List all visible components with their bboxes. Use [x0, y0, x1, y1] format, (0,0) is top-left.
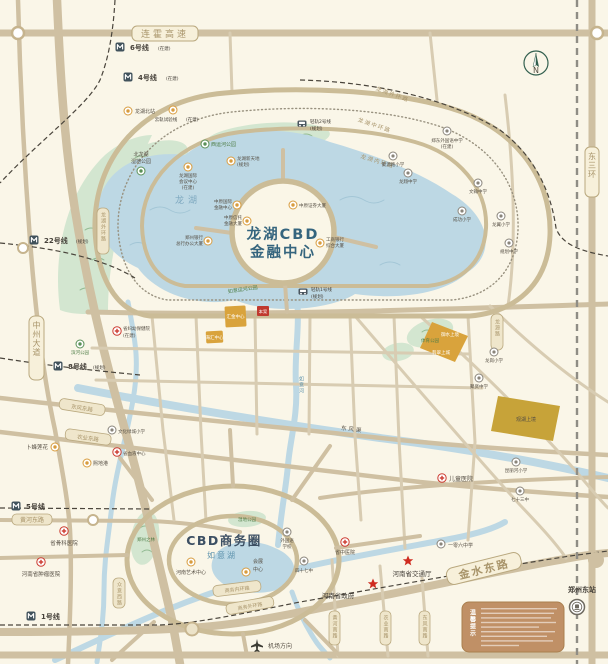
metro-icon: [30, 236, 39, 245]
school-icon: [475, 374, 483, 382]
poi-icon: [169, 106, 177, 114]
shidi-label: 湿地公园: [238, 516, 256, 523]
school-label: 龙岗小学: [485, 357, 503, 364]
poi-icon: [242, 568, 250, 576]
hospital-label: 省骨科医院: [50, 539, 78, 547]
line6-status: (在建): [158, 45, 171, 52]
school-label: 七十三中: [511, 496, 529, 503]
school-icon: [300, 557, 308, 565]
hospital-icon: [113, 448, 121, 456]
hospital-label: 省妇幼保健院: [123, 325, 150, 332]
hospital-icon: [113, 327, 121, 335]
xiyunhe-park-label: 西运河公园: [211, 141, 236, 148]
school-label: 外国语: [280, 537, 294, 544]
school-label: 龙翼小学: [492, 221, 510, 228]
yungui-status: (在建): [186, 116, 199, 123]
ruyi-lake-label: 如意湖: [207, 550, 237, 560]
tower-label: 金融大厦: [224, 220, 242, 227]
tower-label: 金融中心: [214, 204, 232, 211]
school-label: 学校: [283, 543, 292, 550]
school-icon: [474, 179, 482, 187]
lightrail1-status: (规划): [311, 293, 324, 300]
dongsanhuan-label: 东三环: [588, 151, 597, 179]
hospital-label: 省血液中心: [123, 450, 146, 457]
poi-icon: [227, 157, 235, 165]
center-title-line1: 龙湖CBD: [246, 225, 320, 243]
lightrail2-label: 轻轨2号线: [310, 118, 331, 125]
binhe-park-label: 滨河公园: [71, 349, 89, 356]
huiyi-label3: (在建): [182, 184, 195, 191]
tower-label: 郑州银行: [185, 234, 203, 241]
xidigang-label: 熙地港: [93, 460, 108, 467]
park-icon: [201, 140, 209, 148]
school-icon: [490, 348, 498, 356]
park-icon: [76, 340, 84, 348]
lightrail-icon: [299, 289, 308, 295]
compass-north-label: N: [533, 66, 539, 75]
school-label: 聚源路小学: [382, 161, 405, 168]
metro-icon: [116, 43, 125, 52]
site-label: 本案: [259, 308, 268, 315]
poi-icon: [243, 217, 251, 225]
poi-icon: [204, 237, 212, 245]
wetland-label2: 湿地公园: [131, 158, 151, 165]
tower-label: 中原国际: [214, 198, 232, 205]
line22-label: 22号线: [44, 236, 68, 245]
jiaotongting-label: 河南省交通厅: [393, 569, 433, 578]
parcel-b-label: 海汇中心: [206, 334, 224, 341]
parcel-a-label: 汇金中心: [227, 313, 245, 320]
line5-label: 5号线: [26, 502, 45, 511]
school-icon: [443, 127, 451, 135]
notice-box: 温馨提示: [462, 602, 564, 652]
notice-title: 温馨提示: [469, 608, 477, 637]
wetland-label1: 北龙湖: [133, 151, 148, 158]
zhilin-label: 郑州之林: [137, 536, 155, 543]
airport-direction-label: 机场方向: [268, 642, 292, 650]
school-icon: [497, 212, 505, 220]
lightrail-icon: [298, 121, 307, 127]
line4-status: (在建): [166, 75, 179, 82]
location-map: 汇金中心 海汇中心 御水上境 翡翠上城 观湖上境 本案 连霍高速 东三环 中州大…: [0, 0, 608, 664]
school-icon: [404, 169, 412, 177]
hospital-label: (在建): [123, 332, 136, 339]
yishu-label: 河南艺术中心: [176, 569, 206, 576]
sports-park-label: 体育公园: [421, 337, 439, 344]
school-label: 聚贤中学: [470, 383, 488, 390]
tower-label: 综合大厦: [326, 242, 344, 249]
hospital-icon: [37, 558, 45, 566]
poi-icon: [184, 163, 192, 171]
school-icon: [108, 426, 116, 434]
dongfeng-south-label: 东风南路: [422, 614, 428, 639]
school-icon: [516, 487, 524, 495]
parcel-e-label: 观湖上境: [516, 416, 536, 423]
huizhan-label1: 会展: [253, 558, 263, 565]
tower-label: 中原证券大厦: [299, 202, 326, 209]
longhu-west-label: 龙湖外环路: [100, 211, 106, 242]
school-icon: [437, 540, 445, 548]
school-label: 文翰中学: [469, 188, 487, 195]
metro-icon: [27, 612, 36, 621]
school-label: 昆丽河小学: [505, 467, 528, 474]
yungui-label: 云轨试验线: [155, 116, 178, 123]
poi-icon: [233, 201, 241, 209]
parcel-c-label: 御水上境: [441, 331, 459, 338]
poi-icon: [187, 558, 195, 566]
poi-icon: [124, 107, 132, 115]
parcel-d-label: 翡翠上城: [432, 349, 450, 356]
tower-label: 工商银行: [326, 236, 344, 243]
hospital-icon: [341, 538, 349, 546]
map-canvas: 汇金中心 海汇中心 御水上境 翡翠上城 观湖上境 本案 连霍高速 东三环 中州大…: [0, 0, 608, 664]
line22-status: (规划): [76, 238, 89, 245]
zhongyi-west-label: 众意西路: [116, 582, 122, 606]
metro-icon: [12, 502, 21, 511]
school-label: 龙翔中学: [399, 178, 417, 185]
school-icon: [389, 152, 397, 160]
hospital-label: 省中医院: [335, 549, 355, 556]
line4-label: 4号线: [138, 73, 157, 82]
line8-status: (规划): [93, 364, 106, 371]
school-icon: [505, 239, 513, 247]
school-label: 成功小学: [453, 216, 471, 223]
nongye-south-label: 农业南路: [383, 614, 389, 639]
ruyi-river-label: 如意河: [298, 375, 304, 394]
hospital-icon: [60, 527, 68, 535]
poi-icon: [316, 239, 324, 247]
metro-icon: [124, 73, 133, 82]
huanghe-south-label: 黄河南路: [332, 614, 338, 639]
poi-icon: [289, 201, 297, 209]
school-label: 文化绿城小学: [118, 428, 145, 435]
huizhan-label2: 中心: [253, 566, 263, 573]
metro-icon: [54, 362, 63, 371]
lightrail2-status: (规划): [310, 125, 323, 132]
huiyi-label2: 会议中心: [179, 178, 197, 185]
dongzhan-label: 郑州东站: [568, 585, 596, 594]
lianhuo-label: 连霍高速: [141, 28, 189, 40]
hospital-icon: [438, 474, 446, 482]
zhengfu-label: 河南省政府: [322, 591, 355, 600]
hospital-label: 儿童医院: [449, 475, 473, 483]
line8-label: 8号线: [68, 362, 87, 371]
xintiandi-label1: 龙湖新天地: [237, 155, 260, 162]
xintiandi-label2: (规划): [237, 161, 250, 168]
park-icon: [137, 167, 145, 175]
longyuan-label: 龙源路: [494, 318, 500, 337]
school-label: 规划中学: [500, 248, 518, 255]
school-icon: [512, 458, 520, 466]
hospital-label: 河南省肿瘤医院: [22, 570, 61, 578]
lightrail1-label: 轻轨1号线: [311, 286, 332, 293]
center-title-line2: 金融中心: [249, 243, 316, 261]
school-label: 郑东外国语中学: [431, 137, 463, 144]
school-icon: [458, 207, 466, 215]
line6-label: 6号线: [130, 43, 149, 52]
huiyi-label1: 龙湖国际: [179, 172, 197, 179]
school-icon: [283, 528, 291, 536]
school-label: 四十七中: [295, 567, 313, 574]
longhu-lake-label: 龙湖: [175, 194, 201, 206]
school-label: (在建): [441, 143, 454, 150]
school-label: 一零六中学: [448, 542, 473, 549]
poi-icon: [83, 459, 91, 467]
railway-station-icon: [570, 600, 585, 615]
cbd-circle-title: CBD商务圈: [186, 533, 262, 548]
huanghe-east-label: 黄河东路: [20, 516, 44, 524]
poi-icon: [51, 443, 59, 451]
tower-label: 总行办公大厦: [176, 240, 203, 247]
longhubei-label: 龙湖北站: [135, 108, 155, 115]
bufeng-label: 卜蜂莲花: [26, 443, 49, 451]
line1-label: 1号线: [41, 612, 60, 621]
tower-label: 中原信托: [224, 214, 242, 221]
zhongzhou-label: 中州大道: [32, 320, 41, 357]
